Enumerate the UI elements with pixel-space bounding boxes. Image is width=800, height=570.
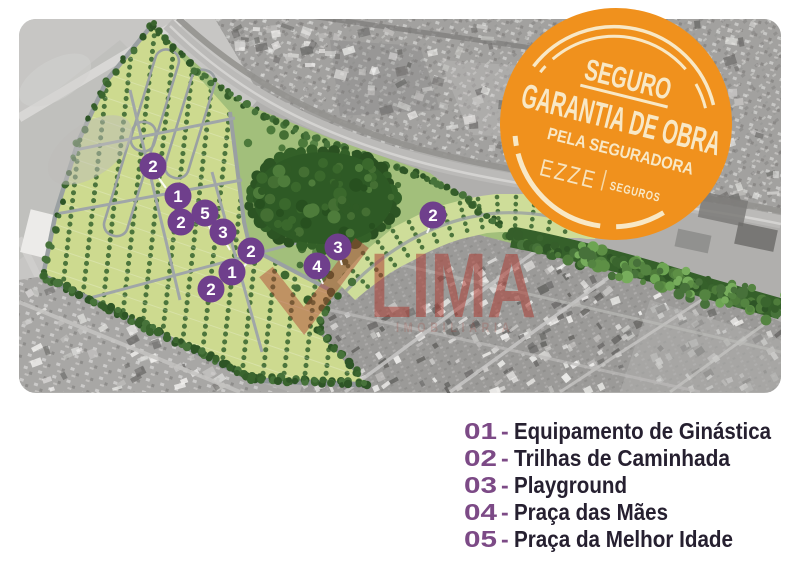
svg-text:Praça das Mães: Praça das Mães — [514, 499, 668, 525]
svg-text:5: 5 — [200, 204, 209, 223]
svg-text:2: 2 — [246, 242, 255, 261]
svg-text:Trilhas de Caminhada: Trilhas de Caminhada — [514, 445, 730, 471]
svg-text:2: 2 — [206, 280, 215, 299]
svg-text:03: 03 — [464, 472, 497, 498]
svg-text:04: 04 — [464, 499, 497, 525]
svg-text:-: - — [501, 472, 509, 498]
svg-text:IMOBILIÁRIA: IMOBILIÁRIA — [396, 319, 514, 335]
svg-text:Equipamento de Ginástica: Equipamento de Ginástica — [514, 418, 771, 444]
svg-text:3: 3 — [333, 238, 342, 257]
svg-text:1: 1 — [173, 187, 182, 206]
svg-text:2: 2 — [148, 157, 157, 176]
svg-text:2: 2 — [428, 206, 437, 225]
svg-text:1: 1 — [227, 263, 236, 282]
svg-text:-: - — [501, 499, 509, 525]
svg-text:05: 05 — [464, 526, 497, 552]
svg-text:-: - — [501, 418, 509, 444]
svg-text:-: - — [501, 445, 509, 471]
svg-text:4: 4 — [312, 257, 322, 276]
svg-text:01: 01 — [464, 418, 497, 444]
svg-text:-: - — [501, 526, 509, 552]
svg-text:02: 02 — [464, 445, 497, 471]
svg-text:Praça da Melhor Idade: Praça da Melhor Idade — [514, 526, 733, 552]
svg-text:Playground: Playground — [514, 472, 627, 498]
svg-text:2: 2 — [176, 213, 185, 232]
svg-text:3: 3 — [218, 223, 227, 242]
